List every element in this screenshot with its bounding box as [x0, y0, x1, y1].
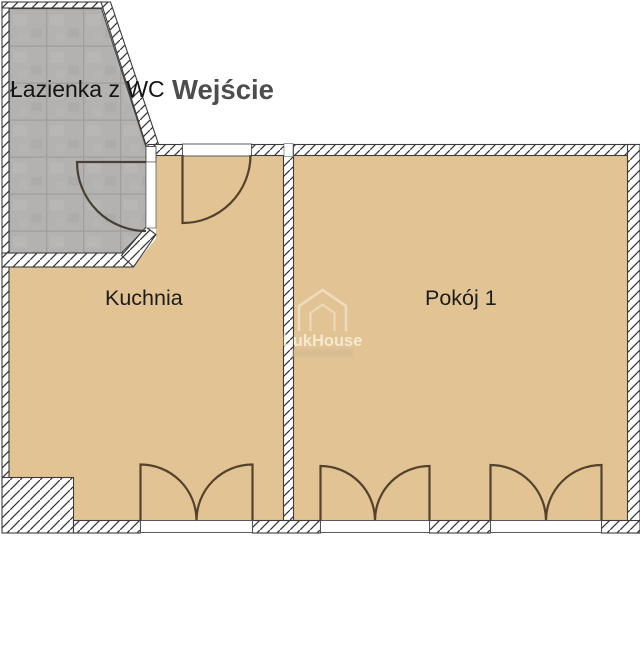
entrance-label: Wejście — [172, 74, 274, 105]
wall-bathroom-bottom — [2, 253, 132, 267]
wall-right — [628, 145, 640, 534]
room1-balcony-threshold-2 — [491, 521, 602, 533]
entrance-threshold — [183, 144, 252, 156]
room1-label: Pokój 1 — [425, 286, 497, 310]
wall-bottom-seg1 — [74, 521, 141, 534]
bathroom-label: Łazienka z WC — [10, 76, 165, 102]
wall-bottom-seg2 — [253, 521, 321, 534]
wall-room1-top — [294, 145, 640, 156]
watermark-tagline-band — [292, 349, 353, 357]
room1-balcony-threshold-1 — [321, 521, 430, 533]
floor-plan-page: Łazienka z WC Wejście Kuchnia Pokój 1 Lu… — [0, 0, 640, 651]
watermark-brand-text: LukHouse — [283, 332, 363, 350]
wall-bottom-seg3 — [430, 521, 491, 534]
wall-bathroom-top — [2, 2, 108, 8]
kitchen-balcony-threshold — [141, 521, 253, 533]
wall-bottom-seg4 — [602, 521, 640, 534]
wall-bottom-left-block — [2, 478, 74, 534]
bathroom-door-jamb — [146, 147, 156, 163]
floor-plan-drawing: Łazienka z WC Wejście Kuchnia Pokój 1 Lu… — [0, 0, 640, 651]
bathroom-door-threshold — [146, 162, 156, 228]
wall-left — [2, 2, 9, 478]
interior-wall-junction — [284, 144, 293, 157]
kitchen-label: Kuchnia — [105, 286, 183, 310]
